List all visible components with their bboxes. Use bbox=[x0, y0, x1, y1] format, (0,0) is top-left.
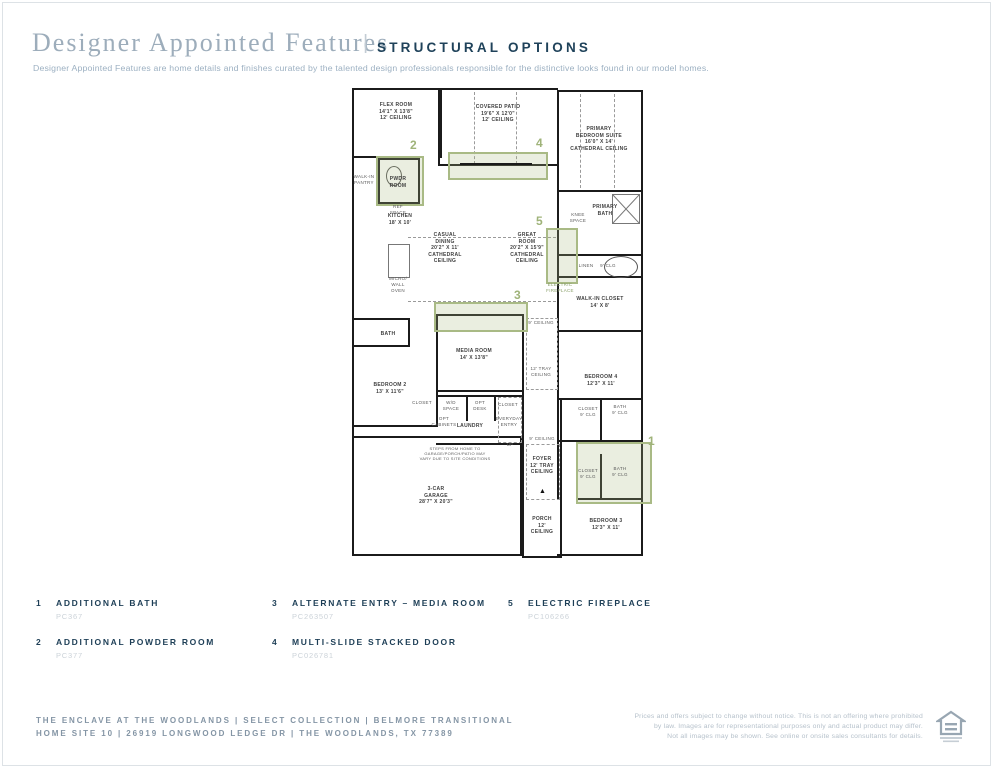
hallway-tray-ceiling bbox=[526, 318, 558, 390]
wall bbox=[557, 90, 643, 92]
marker-4: 4 bbox=[536, 136, 543, 150]
label-closet1: CLOSET9' CLG bbox=[578, 406, 598, 418]
room-label-patio: COVERED PATIO19'6" X 12'0"12' CEILING bbox=[476, 104, 521, 124]
legend-title: ELECTRIC FIREPLACE bbox=[528, 598, 652, 608]
room-label-foyer: FOYER12' TRAYCEILING bbox=[530, 456, 554, 476]
room-label-kitchen: KITCHEN18' X 10' bbox=[388, 213, 412, 226]
porch-arrow-icon: ▲ bbox=[539, 488, 546, 495]
wall bbox=[408, 318, 410, 347]
label-opt-desk: OPTDESK bbox=[473, 400, 486, 412]
label-9ceiling-foyer: 9' CEILING bbox=[529, 436, 555, 442]
section-title: STRUCTURAL OPTIONS bbox=[377, 40, 591, 55]
wall bbox=[522, 390, 524, 500]
wall bbox=[352, 436, 354, 556]
room-label-bedroom3: BEDROOM 312'3" X 11' bbox=[590, 518, 623, 531]
wall bbox=[352, 425, 438, 427]
legend-item-4: 4 MULTI-SLIDE STACKED DOOR PC026781 bbox=[272, 637, 457, 660]
legend-item-2: 2 ADDITIONAL POWDER ROOM PC377 bbox=[36, 637, 215, 660]
legend-num: 4 bbox=[272, 637, 282, 660]
room-label-great-room: GREATROOM20'2" X 15'9"CATHEDRALCEILING bbox=[510, 232, 544, 265]
legend-code: PC026781 bbox=[292, 651, 457, 660]
wall bbox=[352, 88, 558, 90]
room-label-walkin-closet: WALK-IN CLOSET14' X 8' bbox=[576, 296, 623, 309]
label-wd: W/DSPACE bbox=[443, 400, 459, 412]
room-label-micro: MICRO/WALLOVEN bbox=[389, 276, 407, 294]
page-title: Designer Appointed Features bbox=[32, 28, 389, 58]
marker-2: 2 bbox=[410, 138, 417, 152]
room-label-media: MEDIA ROOM14' X 13'8" bbox=[456, 348, 492, 361]
kitchen-island bbox=[388, 244, 410, 278]
label-bath2: BATH9' CLG bbox=[612, 466, 628, 478]
page-description: Designer Appointed Features are home det… bbox=[33, 63, 709, 73]
legend-title: ALTERNATE ENTRY – MEDIA ROOM bbox=[292, 598, 486, 608]
room-label-laundry: LAUNDRY bbox=[457, 423, 483, 430]
room-label-pantry: WALK-INPANTRY bbox=[354, 174, 375, 186]
floor-plan: ▲ 2 4 5 3 1 FLEX ROOM14'1" X 13'8"12' CE… bbox=[348, 86, 650, 566]
legend-item-5: 5 ELECTRIC FIREPLACE PC106266 bbox=[508, 598, 652, 621]
label-up: UP bbox=[507, 442, 514, 448]
equal-housing-icon bbox=[936, 710, 966, 744]
legend-item-3: 3 ALTERNATE ENTRY – MEDIA ROOM PC263507 bbox=[272, 598, 486, 621]
wall bbox=[557, 190, 643, 192]
footer-disclaimer: Prices and offers subject to change with… bbox=[633, 712, 923, 742]
footer-community-info: THE ENCLAVE AT THE WOODLANDS | SELECT CO… bbox=[36, 714, 513, 740]
legend-item-1: 1 ADDITIONAL BATH PC367 bbox=[36, 598, 159, 621]
room-label-linen: LINEN bbox=[579, 263, 594, 269]
legend-title: MULTI-SLIDE STACKED DOOR bbox=[292, 637, 457, 647]
legend-title: ADDITIONAL BATH bbox=[56, 598, 159, 608]
wall bbox=[436, 390, 524, 392]
label-tray-ceiling: 12' TRAYCEILING bbox=[530, 366, 551, 378]
room-label-garage: 3-CARGARAGE28'7" X 20'3" bbox=[419, 486, 453, 506]
label-closet-bd2: CLOSET bbox=[412, 400, 432, 406]
label-steps-note: STEPS FROM HOME TOGARAGE/PORCH/PATIO MAY… bbox=[420, 446, 491, 462]
wall bbox=[557, 554, 643, 556]
legend-code: PC263507 bbox=[292, 612, 486, 621]
room-label-bath-left: BATH bbox=[381, 331, 396, 338]
option-box-fireplace bbox=[546, 228, 578, 284]
room-label-knee: KNEESPACE bbox=[570, 212, 586, 224]
legend-num: 1 bbox=[36, 598, 46, 621]
room-label-porch: PORCH12'CEILING bbox=[531, 516, 553, 536]
option-box-media-entry bbox=[434, 302, 528, 332]
room-label-bedroom4: BEDROOM 412'3" X 11' bbox=[585, 374, 618, 387]
legend-num: 5 bbox=[508, 598, 518, 621]
flyer-page: Designer Appointed Features | STRUCTURAL… bbox=[0, 0, 993, 768]
room-label-bedroom2: BEDROOM 213' X 11'6" bbox=[374, 382, 407, 395]
title-divider: | bbox=[363, 32, 368, 55]
label-9clg: 9' CLG bbox=[600, 263, 616, 269]
room-label-flex: FLEX ROOM14'1" X 13'8"12' CEILING bbox=[379, 102, 413, 122]
stacked-door-line bbox=[460, 163, 532, 165]
wall bbox=[352, 436, 522, 438]
label-closet2: CLOSET9' CLG bbox=[578, 468, 598, 480]
label-opt-cabinets: OPTCABINETS bbox=[432, 416, 457, 428]
marker-1: 1 bbox=[648, 434, 655, 448]
label-closet-mid: CLOSET bbox=[498, 402, 518, 408]
footer-project-line: THE ENCLAVE AT THE WOODLANDS | SELECT CO… bbox=[36, 714, 513, 727]
wall bbox=[438, 88, 440, 166]
marker-3: 3 bbox=[514, 288, 521, 302]
wall bbox=[522, 500, 524, 558]
wall bbox=[600, 398, 602, 440]
legend-code: PC377 bbox=[56, 651, 215, 660]
legend-code: PC367 bbox=[56, 612, 159, 621]
legend-code: PC106266 bbox=[528, 612, 652, 621]
label-bath1: BATH9' CLG bbox=[612, 404, 628, 416]
marker-5: 5 bbox=[536, 214, 543, 228]
label-everyday-entry: EVERYDAYENTRY bbox=[496, 416, 523, 428]
option-box-stacked-door bbox=[448, 152, 548, 180]
room-label-primary: PRIMARYBEDROOM SUITE16'0" X 14'CATHEDRAL… bbox=[570, 126, 627, 152]
wall bbox=[522, 556, 562, 558]
wall bbox=[560, 500, 562, 558]
wall bbox=[557, 330, 643, 332]
legend-title: ADDITIONAL POWDER ROOM bbox=[56, 637, 215, 647]
wall bbox=[560, 398, 562, 500]
wall bbox=[352, 554, 522, 556]
legend-num: 3 bbox=[272, 598, 282, 621]
label-9ceiling-hall: 9' CEILING bbox=[528, 320, 554, 326]
legend-num: 2 bbox=[36, 637, 46, 660]
room-label-pwdr: PWDRROOM bbox=[390, 176, 407, 189]
wall bbox=[557, 90, 559, 500]
wall bbox=[352, 318, 410, 320]
room-label-primary-bath: PRIMARYBATH bbox=[593, 204, 618, 217]
wall bbox=[352, 88, 354, 436]
footer-address-line: HOME SITE 10 | 26919 LONGWOOD LEDGE DR |… bbox=[36, 727, 513, 740]
wall bbox=[440, 88, 442, 158]
wall bbox=[352, 345, 410, 347]
wall bbox=[436, 345, 438, 427]
wall bbox=[466, 395, 468, 421]
label-electric-fireplace: ELECTRICFIREPLACE bbox=[546, 282, 574, 294]
room-label-casual-dining: CASUALDINING20'2" X 11'CATHEDRALCEILING bbox=[428, 232, 461, 265]
